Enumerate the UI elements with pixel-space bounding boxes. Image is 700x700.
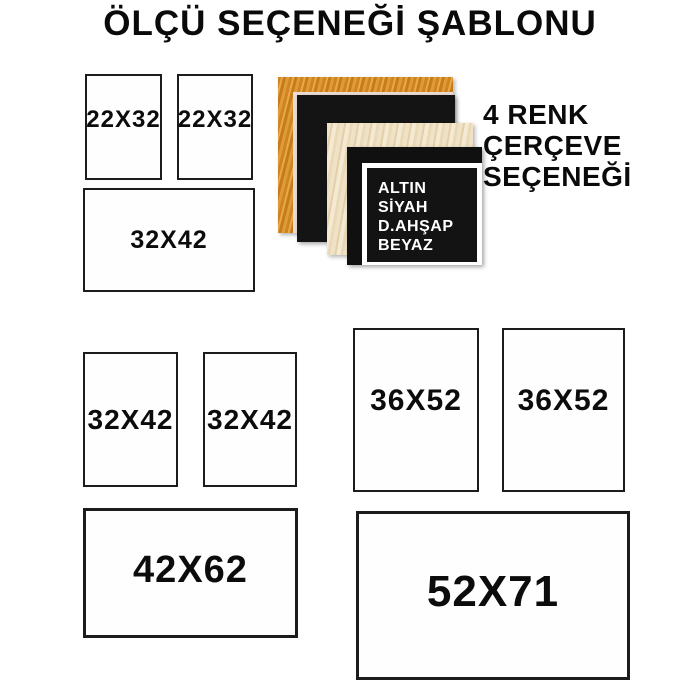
heading-line-3: SEÇENEĞİ bbox=[483, 161, 698, 192]
size-box-36x52-a: 36X52 bbox=[353, 328, 479, 492]
heading-line-2: ÇERÇEVE bbox=[483, 130, 698, 161]
heading-line-1: 4 RENK bbox=[483, 99, 698, 130]
frame-color-list-panel: ALTIN SİYAH D.AHŞAP BEYAZ bbox=[367, 168, 477, 262]
size-label: 32X42 bbox=[88, 404, 174, 436]
size-box-32x42-portrait-a: 32X42 bbox=[83, 352, 178, 487]
size-label: 36X52 bbox=[370, 384, 462, 418]
size-label: 36X52 bbox=[518, 384, 610, 418]
size-box-32x42-landscape: 32X42 bbox=[83, 188, 255, 292]
size-box-42x62: 42X62 bbox=[83, 508, 298, 638]
color-option-gold: ALTIN bbox=[378, 179, 477, 198]
size-label: 22X32 bbox=[178, 106, 252, 134]
size-option-template: ÖLÇÜ SEÇENEĞİ ŞABLONU 22X32 22X32 32X42 … bbox=[0, 0, 700, 700]
size-label: 52X71 bbox=[427, 567, 559, 617]
size-box-22x32-a: 22X32 bbox=[85, 74, 162, 180]
size-box-22x32-b: 22X32 bbox=[177, 74, 253, 180]
size-box-32x42-portrait-b: 32X42 bbox=[203, 352, 297, 487]
color-option-wood: D.AHŞAP bbox=[378, 217, 477, 236]
color-option-black: SİYAH bbox=[378, 198, 477, 217]
size-label: 42X62 bbox=[133, 549, 248, 592]
page-title: ÖLÇÜ SEÇENEĞİ ŞABLONU bbox=[0, 4, 700, 44]
size-label: 32X42 bbox=[130, 226, 207, 255]
frame-colors-heading: 4 RENK ÇERÇEVE SEÇENEĞİ bbox=[483, 99, 698, 192]
size-box-36x52-b: 36X52 bbox=[502, 328, 625, 492]
size-box-52x71: 52X71 bbox=[356, 511, 630, 680]
size-label: 22X32 bbox=[86, 106, 160, 134]
size-label: 32X42 bbox=[207, 404, 293, 436]
color-option-white: BEYAZ bbox=[378, 236, 477, 255]
